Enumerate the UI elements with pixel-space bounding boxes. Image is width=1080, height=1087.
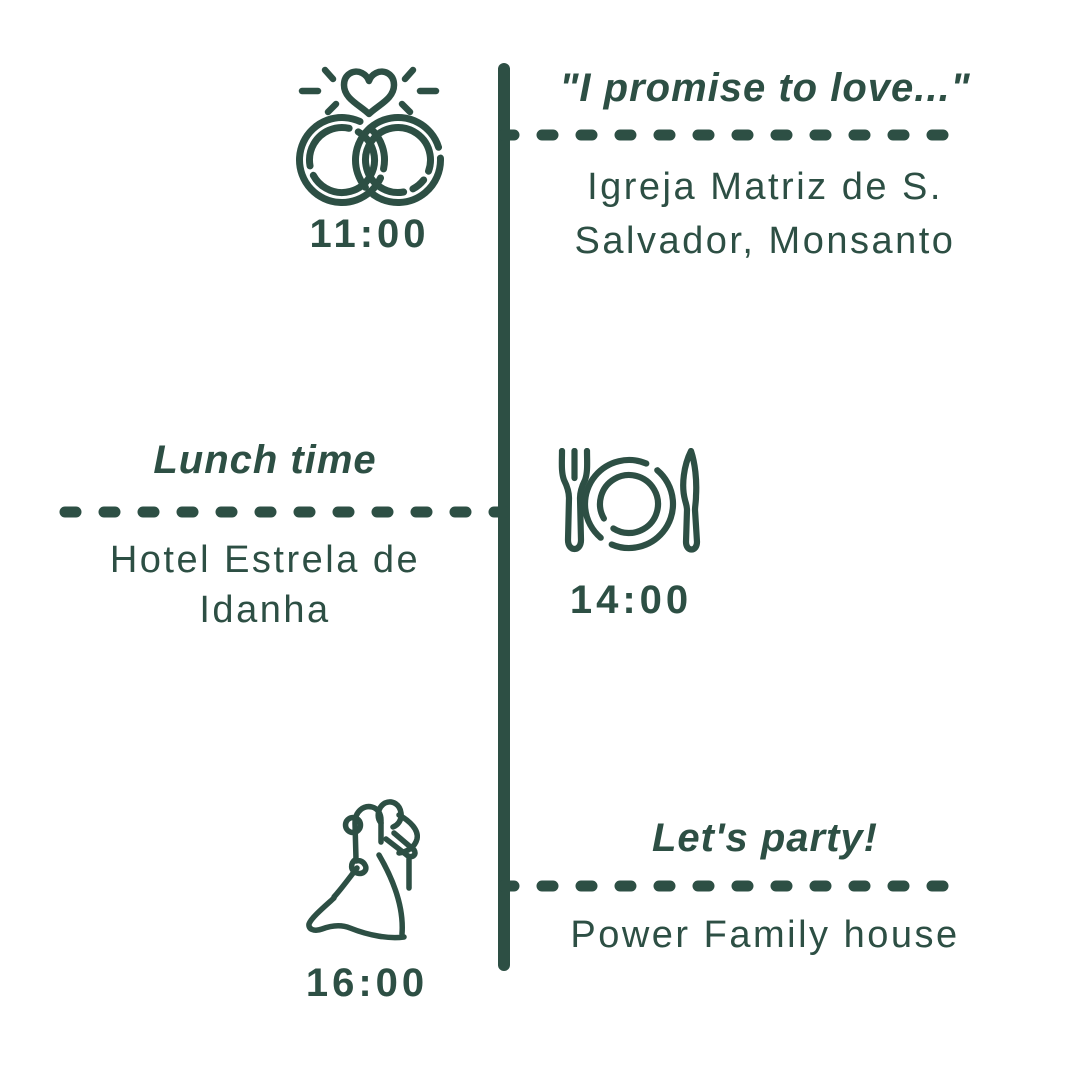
dashed-connector-lunch — [50, 506, 508, 518]
dashed-connector-party — [500, 880, 952, 892]
event-location-line: Idanha — [40, 585, 490, 635]
event-title-party: Let's party! — [515, 814, 1015, 862]
event-location-line: Hotel Estrela de — [40, 535, 490, 585]
dancing-couple-icon — [300, 795, 435, 950]
event-title-ceremony: "I promise to love..." — [515, 64, 1015, 112]
event-location-party: Power Family house — [515, 910, 1015, 960]
event-time-lunch: 14:00 — [556, 576, 706, 624]
wedding-timeline-poster: 11:00 "I promise to love..." Igreja Matr… — [0, 0, 1080, 1087]
event-title-lunch: Lunch time — [40, 436, 490, 484]
event-time-party: 16:00 — [292, 959, 442, 1007]
event-location-ceremony: Igreja Matriz de S. Salvador, Monsanto — [515, 160, 1015, 268]
event-location-line: Igreja Matriz de S. — [515, 160, 1015, 214]
dinner-plate-cutlery-icon — [556, 448, 706, 560]
event-location-line: Salvador, Monsanto — [515, 214, 1015, 268]
event-location-line: Power Family house — [515, 910, 1015, 960]
dashed-connector-ceremony — [500, 129, 952, 141]
event-time-ceremony: 11:00 — [292, 210, 447, 258]
event-location-lunch: Hotel Estrela de Idanha — [40, 535, 490, 635]
wedding-rings-heart-icon — [292, 64, 447, 209]
